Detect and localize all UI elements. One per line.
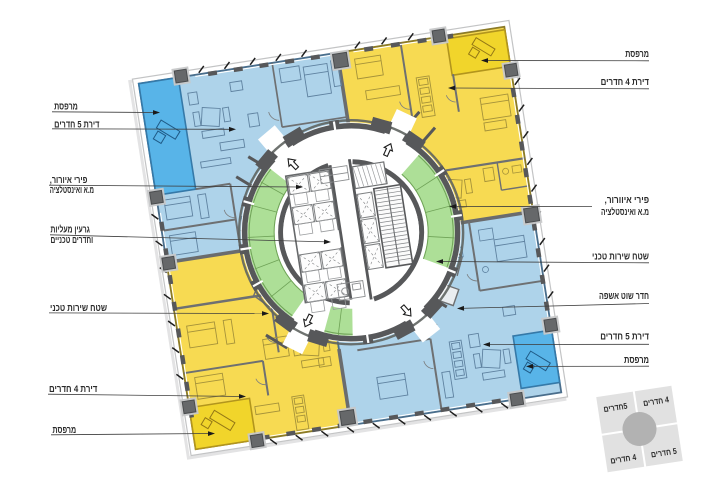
svg-text:גרעין מעליות: גרעין מעליות xyxy=(50,225,90,236)
svg-text:וחדרים טכניים: וחדרים טכניים xyxy=(51,235,94,246)
svg-text:דירת 4 חדרים: דירת 4 חדרים xyxy=(49,384,98,395)
svg-text:דירת 4 חדרים: דירת 4 חדרים xyxy=(601,77,650,88)
svg-text:מרפסת: מרפסת xyxy=(625,49,649,60)
svg-text:דירת 5 חדרים: דירת 5 חדרים xyxy=(600,332,649,343)
svg-text:מרפסת: מרפסת xyxy=(52,425,76,436)
svg-text:מ.א ואינסטלציה: מ.א ואינסטלציה xyxy=(50,185,94,196)
svg-text:שטח שירות טכני: שטח שירות טכני xyxy=(50,303,107,314)
svg-text:פירי איוורור,: פירי איוורור, xyxy=(605,195,650,206)
svg-text:שטח שירות טכני: שטח שירות טכני xyxy=(592,252,649,263)
svg-text:מרפסת: מרפסת xyxy=(624,355,649,366)
svg-text:דירת 5 חדרים: דירת 5 חדרים xyxy=(54,119,100,130)
svg-text:מרפסת: מרפסת xyxy=(54,102,78,113)
svg-text:מ.א ואינסטלציה: מ.א ואינסטלציה xyxy=(601,207,649,218)
svg-text:חדר שוט אשפה: חדר שוט אשפה xyxy=(599,291,649,302)
